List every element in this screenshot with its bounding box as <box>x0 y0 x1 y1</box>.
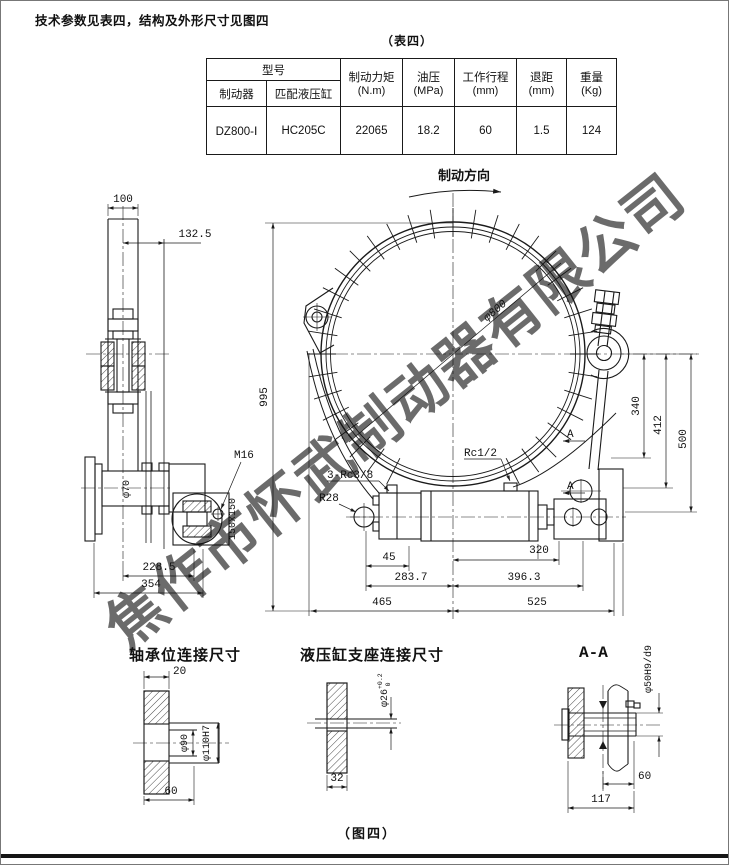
support-title: 液压缸支座连接尺寸 <box>300 646 444 664</box>
dim-phi50: φ50H9/d9 <box>636 645 663 757</box>
dim-340: 340 <box>631 354 644 458</box>
section-marks: A A <box>563 429 585 493</box>
dim-label-500: 500 <box>678 429 690 449</box>
dim-label-320: 320 <box>529 545 549 557</box>
drum-tick <box>367 236 384 259</box>
drum-tick <box>335 268 358 285</box>
dim-525: 525 <box>453 597 614 611</box>
drum-tick <box>522 236 539 259</box>
dim-label-phi26: φ26 <box>380 689 391 707</box>
dim-label-100: 100 <box>113 194 133 206</box>
drum-tick <box>506 458 519 484</box>
section-label-a1: A <box>567 429 574 441</box>
dim-132-5: 132.5 <box>123 229 212 243</box>
svg-text:φ26+0.20: φ26+0.20 <box>377 673 392 707</box>
dim-label-32: 32 <box>330 773 343 785</box>
dim-label-phi110: φ110H7 <box>202 725 213 761</box>
drum-tick <box>557 407 583 420</box>
dim-label-340: 340 <box>631 396 643 416</box>
tol-upper: +0.2 <box>377 673 384 689</box>
dim-283-7: 283.7 <box>366 572 453 586</box>
braking-direction-label: 制动方向 <box>438 168 490 183</box>
dim-412: 412 <box>653 354 666 488</box>
drum-tick <box>387 224 400 250</box>
dim-label-45: 45 <box>382 552 395 564</box>
dim-117: 117 <box>568 761 634 813</box>
dim-465: 465 <box>311 597 453 611</box>
threaded-rod-nuts <box>591 290 620 335</box>
dim-label-60-bearing: 60 <box>164 786 177 798</box>
dim-label-995: 995 <box>259 387 271 407</box>
dim-extension-lines <box>265 223 697 616</box>
dim-500: 500 <box>678 354 691 512</box>
drum-tick <box>522 449 539 472</box>
dim-label-525: 525 <box>527 597 547 609</box>
support-detail: 液压缸支座连接尺寸 φ26+0.20 32 <box>300 646 444 791</box>
dim-phi26: φ26+0.20 <box>377 673 392 750</box>
dim-label-465: 465 <box>372 597 392 609</box>
dim-320: 320 <box>453 545 559 560</box>
drawing-page: 技术参数见表四，结构及外形尺寸见图四 （表四） 型号 制动力矩(N.m) 油压(… <box>0 0 729 865</box>
dim-label-132-5: 132.5 <box>178 229 211 241</box>
dim-label-60-aa: 60 <box>638 771 651 783</box>
technical-drawing: A A 995 φ800 <box>1 1 729 865</box>
dim-label-412: 412 <box>653 415 665 435</box>
drum-tick <box>387 458 400 484</box>
drum-tick <box>323 288 349 301</box>
svg-text:Rc1/2: Rc1/2 <box>464 448 497 460</box>
dim-32: 32 <box>327 773 347 791</box>
dim-label-phi90: φ90 <box>180 734 191 752</box>
hydraulic-cylinder <box>350 483 554 541</box>
figure-caption: （图四） <box>337 823 397 842</box>
dim-label-283-7: 283.7 <box>394 572 427 584</box>
dim-label-117: 117 <box>591 794 611 806</box>
side-view <box>85 219 229 549</box>
aa-title: A-A <box>579 644 608 662</box>
drum-tick <box>506 224 519 250</box>
section-label-a2: A <box>567 481 574 493</box>
dim-label-20: 20 <box>173 666 186 678</box>
dim-label-396-3: 396.3 <box>507 572 540 584</box>
dim-label-m16: M16 <box>234 450 254 462</box>
dim-396-3: 396.3 <box>453 572 583 586</box>
dim-label-phi70: φ70 <box>122 480 133 498</box>
braking-direction: 制动方向 <box>409 168 501 197</box>
bottom-rule <box>1 854 728 858</box>
dim-20: 20 <box>144 666 186 689</box>
bearing-detail: 轴承位连接尺寸 20 φ90 <box>129 646 241 805</box>
dim-45: 45 <box>366 552 409 566</box>
aa-detail: A-A <box>562 644 663 813</box>
tol-lower: 0 <box>385 682 392 686</box>
dim-label-phi50: φ50H9/d9 <box>643 645 655 693</box>
